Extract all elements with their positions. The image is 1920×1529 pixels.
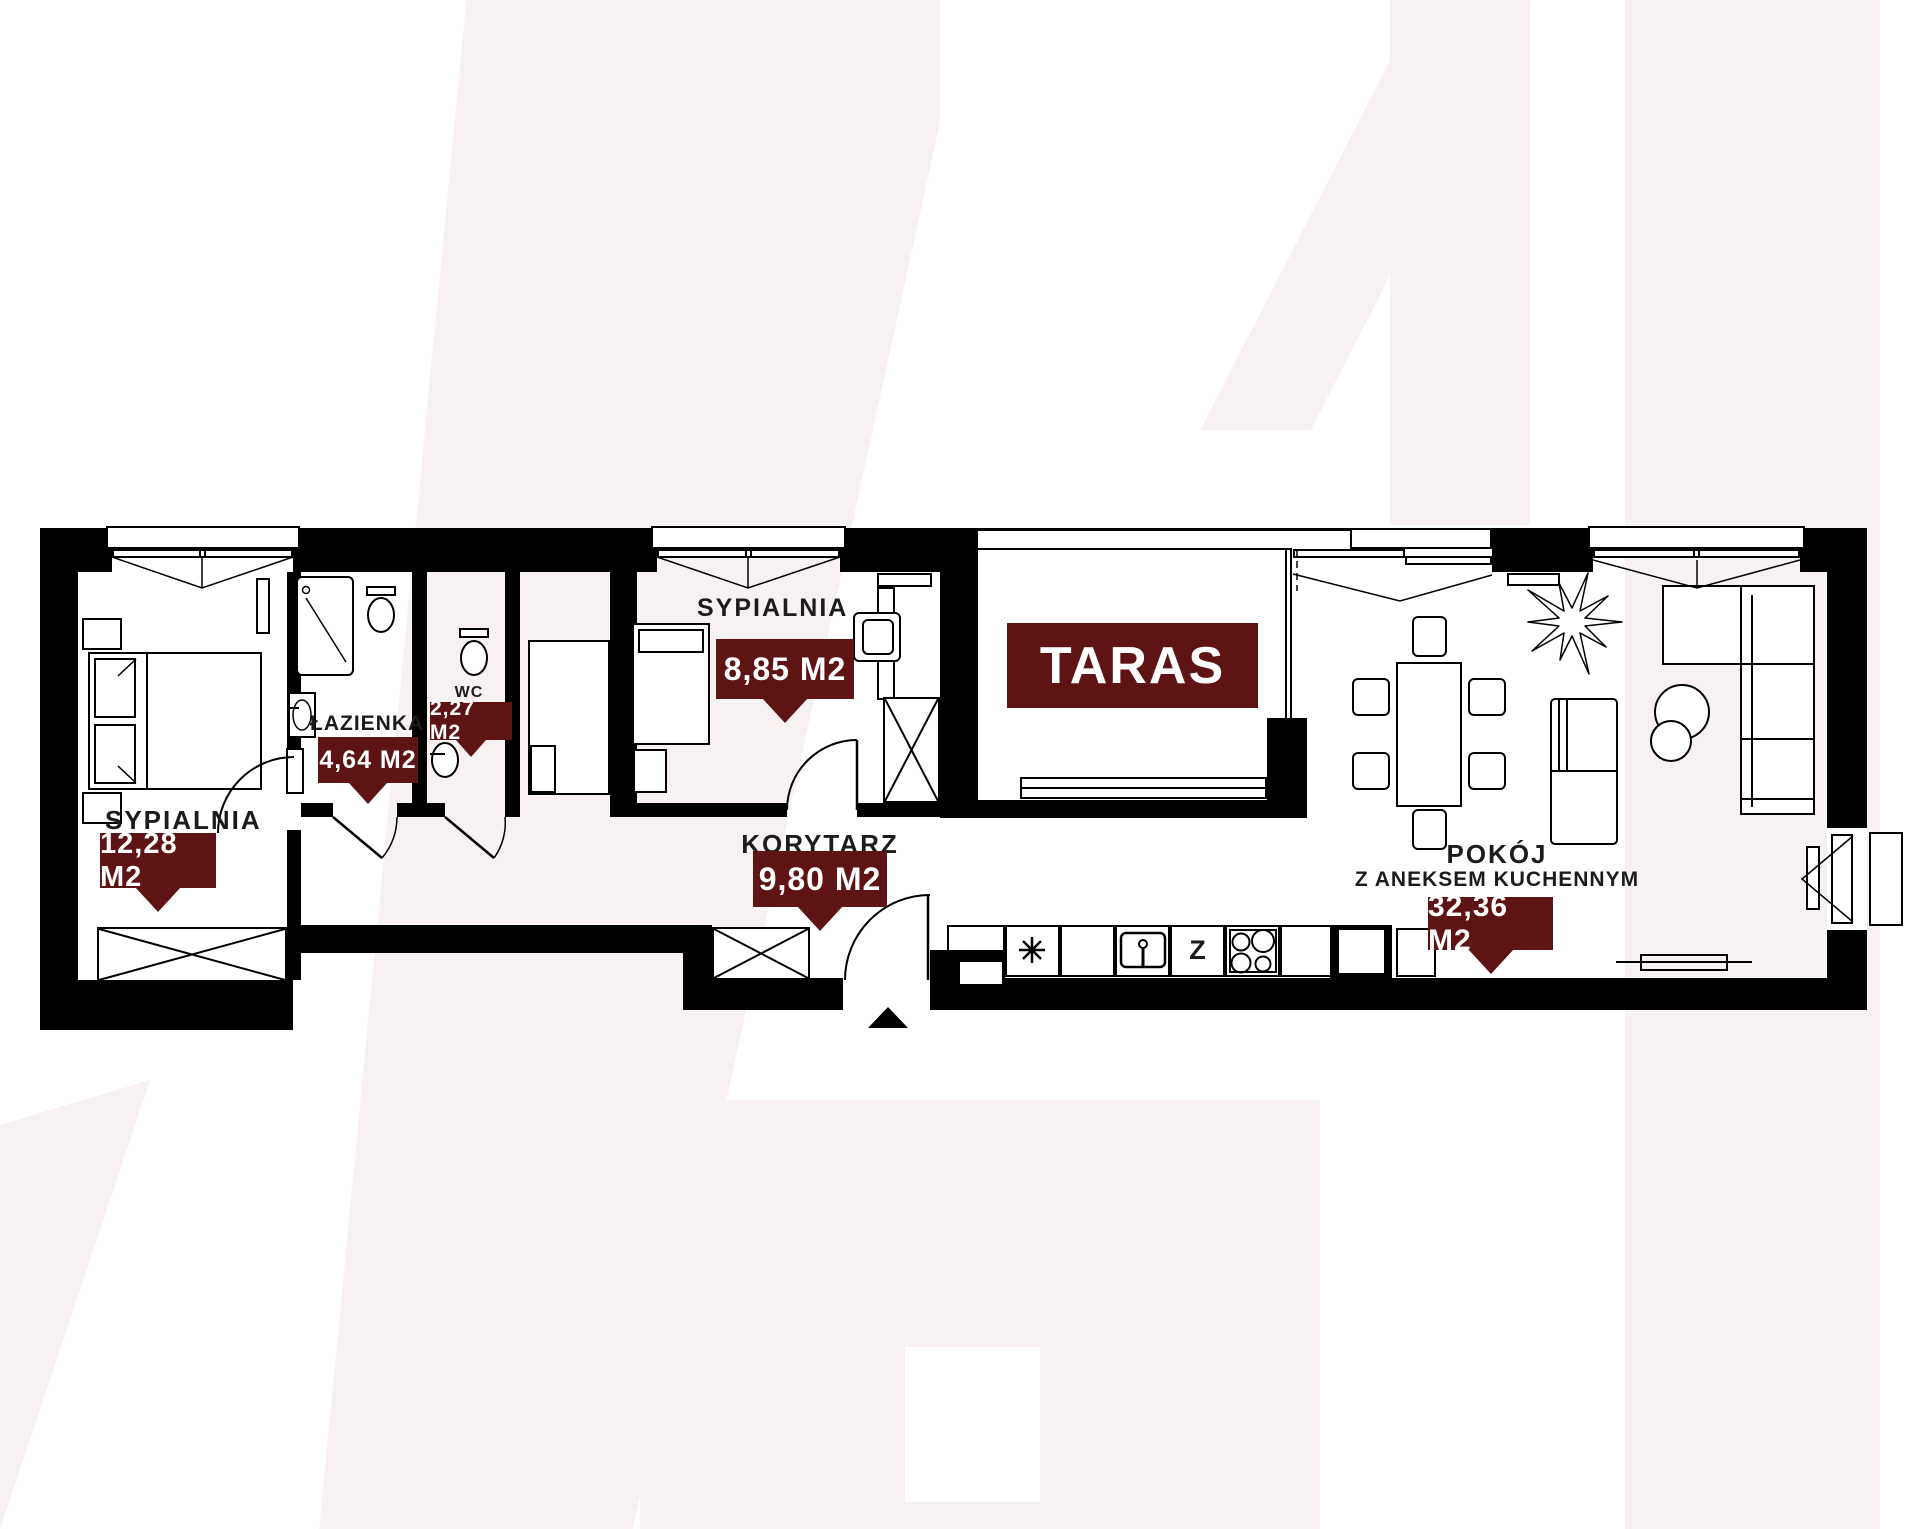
kitchen-unit-sink [1115, 925, 1170, 977]
door-leaf [333, 817, 382, 858]
watermark-shape [1390, 0, 1530, 525]
armchair-line [1566, 698, 1568, 770]
wall-segment [683, 978, 843, 1010]
window-leaf [1831, 834, 1853, 924]
watermark-notch [905, 1347, 1040, 1502]
area-badge-living: 32,36 M2 [1428, 897, 1553, 950]
wall-segment [610, 803, 787, 817]
wall-segment [40, 980, 293, 1030]
dining-chair [1352, 752, 1390, 790]
wall-segment [301, 803, 333, 817]
room-label-bedroom2: SYPIALNIA [697, 595, 837, 623]
wall-segment [40, 528, 78, 1030]
desk-chair-seat [862, 619, 894, 655]
nightstand [633, 749, 667, 793]
wall-segment [857, 803, 940, 817]
pillow [94, 724, 136, 784]
sliding-door-pane [1405, 556, 1492, 565]
dining-table [1396, 662, 1462, 807]
window-handle [745, 549, 752, 558]
window-sill [1869, 832, 1903, 926]
fridge [1337, 928, 1386, 975]
wall-shelf [256, 578, 270, 634]
wall-segment [1492, 528, 1593, 572]
wall-segment [978, 800, 1307, 818]
terrace-outline [1290, 548, 1292, 718]
plant-icon [1528, 573, 1622, 674]
wall-segment [940, 530, 978, 818]
pillow [638, 629, 704, 653]
window-opening-indicator [1293, 574, 1492, 601]
wall-segment [1827, 528, 1867, 1010]
terrace-outline [1285, 548, 1287, 718]
toilet-tank [459, 628, 489, 638]
sofa-line [1740, 798, 1815, 800]
terrace-outline [978, 548, 1291, 550]
toilet-tank [366, 586, 396, 596]
sofa-line [1740, 663, 1815, 665]
area-badge-corridor: 9,80 M2 [753, 851, 887, 907]
radiator-line [1642, 961, 1726, 963]
wall-segment [505, 803, 520, 817]
area-badge-bathroom: 4,64 M2 [318, 737, 418, 783]
door-arc [845, 895, 930, 980]
kitchen-unit [947, 925, 1005, 952]
kitchen-unit [1280, 925, 1332, 977]
kitchen-unit [1060, 925, 1115, 977]
entrance-marker [868, 1007, 908, 1028]
window-sill [106, 526, 300, 549]
window-handle [1693, 549, 1700, 558]
window-handle [199, 549, 206, 558]
wall-segment [505, 572, 520, 817]
wall-segment [397, 803, 445, 817]
wall-segment [293, 528, 657, 572]
kitchen-z-label: Z [1170, 936, 1225, 966]
area-badge-bedroom1: 12,28 M2 [100, 833, 216, 888]
sliding-door-sill [1350, 528, 1492, 549]
wall-segment [930, 978, 1867, 1010]
room-label-living-line1: POKÓJ [1380, 840, 1614, 869]
cooktop-frame [1229, 929, 1277, 973]
wall-segment [287, 830, 301, 980]
sofa-line [1751, 595, 1753, 807]
sofa-line [1740, 738, 1815, 740]
toilet-bowl [368, 598, 394, 632]
room-label-bathroom: ŁAZIENKA [310, 712, 420, 735]
hall-cabinet-inset [530, 745, 556, 793]
armchair-line [1558, 698, 1560, 770]
wardrobe-crossed [712, 927, 810, 980]
area-badge-terrace: TARAS [1007, 623, 1258, 708]
wall-segment [293, 925, 683, 953]
washing-machine [286, 748, 304, 794]
radiator [1806, 846, 1820, 910]
wardrobe-crossed [883, 697, 940, 803]
area-badge-bedroom2: 8,85 M2 [716, 639, 854, 699]
window-sill [651, 526, 846, 549]
shower [296, 576, 354, 676]
wardrobe-crossed [97, 927, 287, 982]
pillow [94, 658, 136, 718]
sliding-door-pane [1293, 549, 1405, 558]
watermark-shape [0, 1080, 150, 1529]
area-badge-wc: 2,27 M2 [430, 702, 512, 740]
wall-shelf [1507, 573, 1560, 586]
dining-chair [1468, 678, 1506, 716]
dining-chair [1412, 616, 1447, 657]
room-label-living-line2: Z ANEKSEM KUCHENNYM [1337, 868, 1657, 891]
desk-shelf [877, 573, 932, 587]
nightstand [82, 618, 122, 650]
dining-chair [1468, 752, 1506, 790]
bed-line [146, 652, 148, 790]
kitchen-corner-inset [960, 962, 1002, 984]
dining-chair [1352, 678, 1390, 716]
armchair-line [1550, 770, 1618, 772]
kitchen-unit-dishwasher [1005, 925, 1060, 977]
terrace-step-line [1022, 787, 1265, 789]
floor-plan: Z [0, 0, 1920, 1529]
wall-segment [1267, 718, 1307, 818]
window-sill [1588, 526, 1805, 549]
